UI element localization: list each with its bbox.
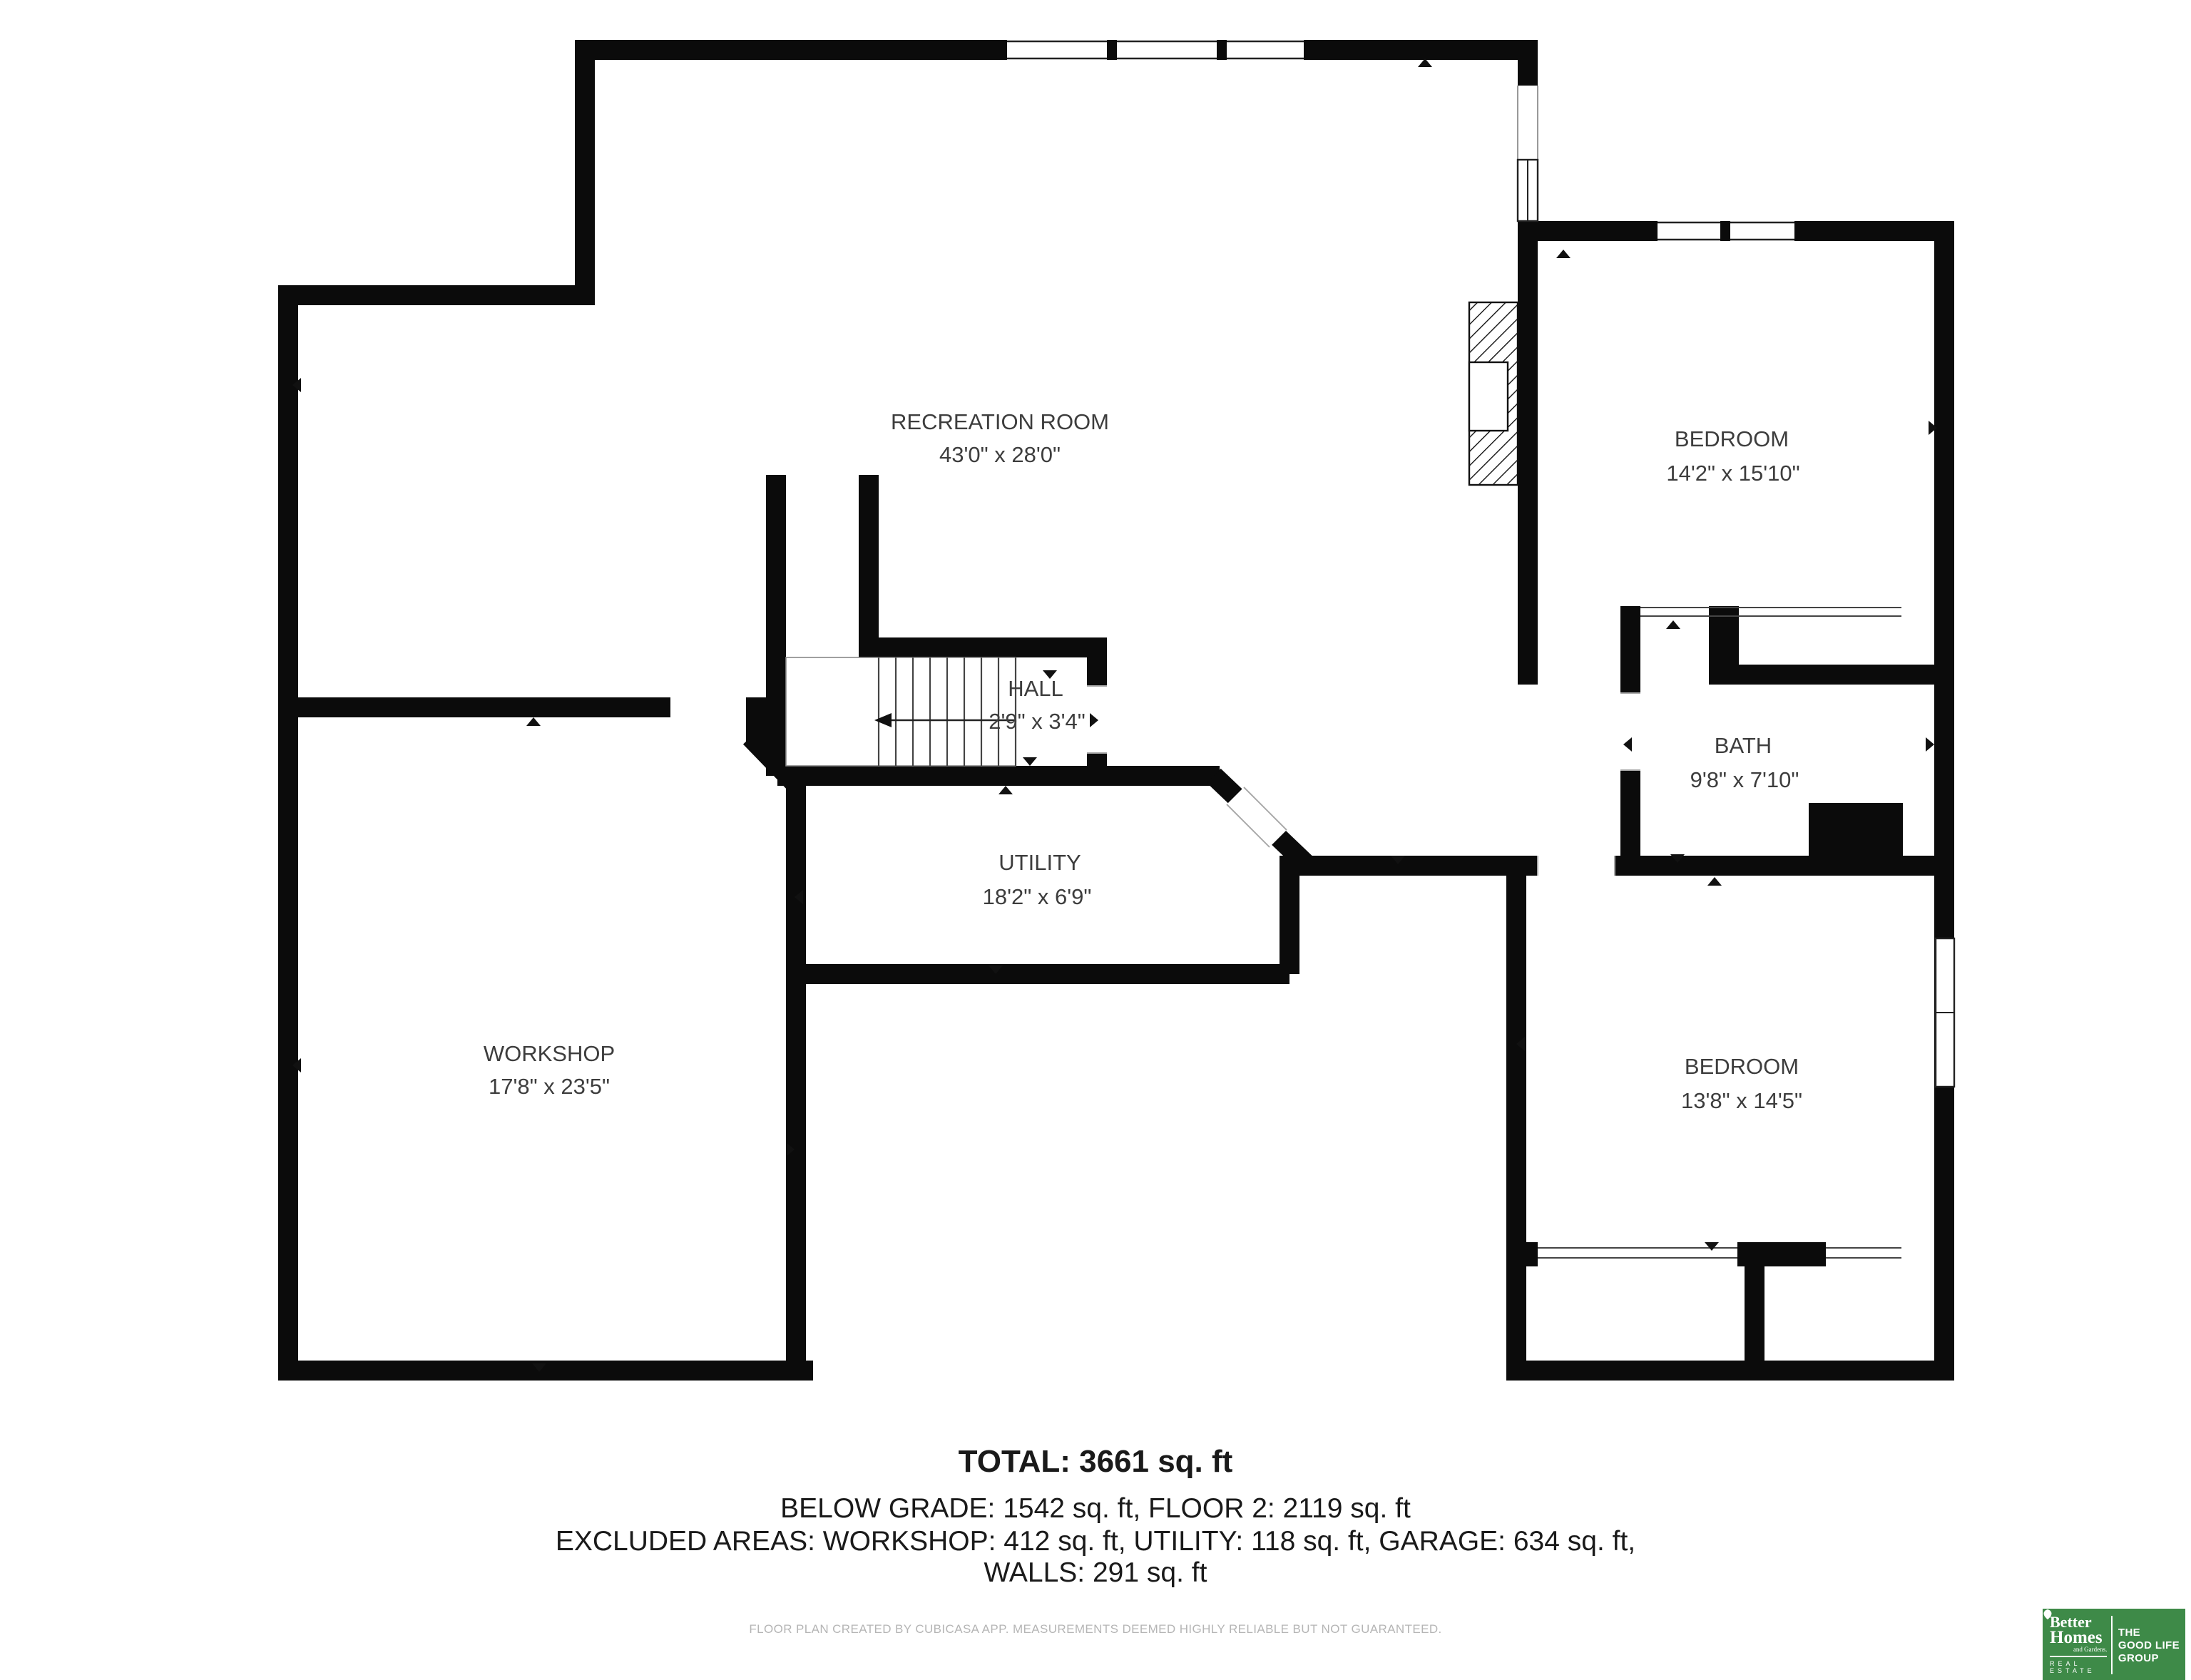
tagline-good-life: GOOD LIFE xyxy=(2118,1639,2180,1651)
walls-area: WALLS: 291 sq. ft xyxy=(0,1557,2191,1589)
wall-blocks xyxy=(1516,606,1903,1266)
svg-text:BATH: BATH xyxy=(1715,733,1772,758)
bhg-real-estate: REAL ESTATE xyxy=(2050,1660,2107,1674)
closet-upper-bedroom xyxy=(1640,608,1901,616)
bhg-wordmark: Better Homes and Gardens. REAL ESTATE xyxy=(2050,1614,2107,1676)
area-summary: TOTAL: 3661 sq. ft BELOW GRADE: 1542 sq.… xyxy=(0,1443,2191,1589)
svg-text:13'8" x 14'5": 13'8" x 14'5" xyxy=(1681,1088,1802,1113)
svg-text:9'8" x 7'10": 9'8" x 7'10" xyxy=(1690,767,1799,792)
leaf-icon xyxy=(2043,1609,2053,1620)
bhg-and-gardens: and Gardens. xyxy=(2050,1646,2107,1654)
svg-text:RECREATION ROOM: RECREATION ROOM xyxy=(891,409,1109,434)
svg-text:UTILITY: UTILITY xyxy=(999,850,1081,875)
window-bedroom-lower xyxy=(1936,938,1954,1087)
disclaimer-text: FLOOR PLAN CREATED BY CUBICASA APP. MEAS… xyxy=(0,1622,2191,1636)
svg-text:18'2" x 6'9": 18'2" x 6'9" xyxy=(983,884,1092,909)
svg-text:BEDROOM: BEDROOM xyxy=(1675,426,1789,451)
grade-areas: BELOW GRADE: 1542 sq. ft, FLOOR 2: 2119 … xyxy=(0,1493,2191,1525)
floor-plan-drawing: RECREATION ROOM 43'0" x 28'0" HALL 2'9" … xyxy=(0,0,2191,1643)
door-diagonal xyxy=(1227,787,1287,847)
floor-plan-page: RECREATION ROOM 43'0" x 28'0" HALL 2'9" … xyxy=(0,0,2191,1643)
svg-text:17'8" x 23'5": 17'8" x 23'5" xyxy=(489,1074,610,1099)
tagline-group: GROUP xyxy=(2118,1651,2180,1664)
bhg-homes: Homes xyxy=(2050,1631,2103,1646)
excluded-areas: EXCLUDED AREAS: WORKSHOP: 412 sq. ft, UT… xyxy=(0,1525,2191,1557)
room-label-bedroom-upper: BEDROOM 14'2" x 15'10" xyxy=(1666,426,1799,486)
brand-logo: Better Homes and Gardens. REAL ESTATE TH… xyxy=(2043,1609,2185,1680)
svg-text:BEDROOM: BEDROOM xyxy=(1685,1054,1799,1079)
logo-divider xyxy=(2111,1616,2112,1674)
window-bedroom-upper xyxy=(1658,221,1794,241)
room-label-recreation: RECREATION ROOM 43'0" x 28'0" xyxy=(891,409,1109,467)
good-life-group: THE GOOD LIFE GROUP xyxy=(2118,1614,2180,1676)
svg-text:2'9" x 3'4": 2'9" x 3'4" xyxy=(989,709,1086,734)
fireplace xyxy=(1469,302,1518,485)
room-label-bath: BATH 9'8" x 7'10" xyxy=(1690,733,1799,792)
room-label-utility: UTILITY 18'2" x 6'9" xyxy=(983,850,1092,909)
svg-text:WORKSHOP: WORKSHOP xyxy=(484,1041,615,1066)
svg-text:14'2" x 15'10": 14'2" x 15'10" xyxy=(1666,461,1799,486)
total-area: TOTAL: 3661 sq. ft xyxy=(0,1443,2191,1480)
window-top xyxy=(1007,40,1304,60)
svg-text:43'0" x 28'0": 43'0" x 28'0" xyxy=(939,442,1061,467)
window-upper-right xyxy=(1518,86,1538,221)
stairs xyxy=(786,657,1016,766)
logo-rule xyxy=(2050,1656,2107,1658)
svg-text:HALL: HALL xyxy=(1008,676,1063,701)
tagline-the: THE xyxy=(2118,1626,2180,1639)
room-label-workshop: WORKSHOP 17'8" x 23'5" xyxy=(484,1041,615,1099)
room-label-bedroom-lower: BEDROOM 13'8" x 14'5" xyxy=(1681,1054,1802,1113)
closet-lower-bedroom xyxy=(1538,1248,1901,1258)
